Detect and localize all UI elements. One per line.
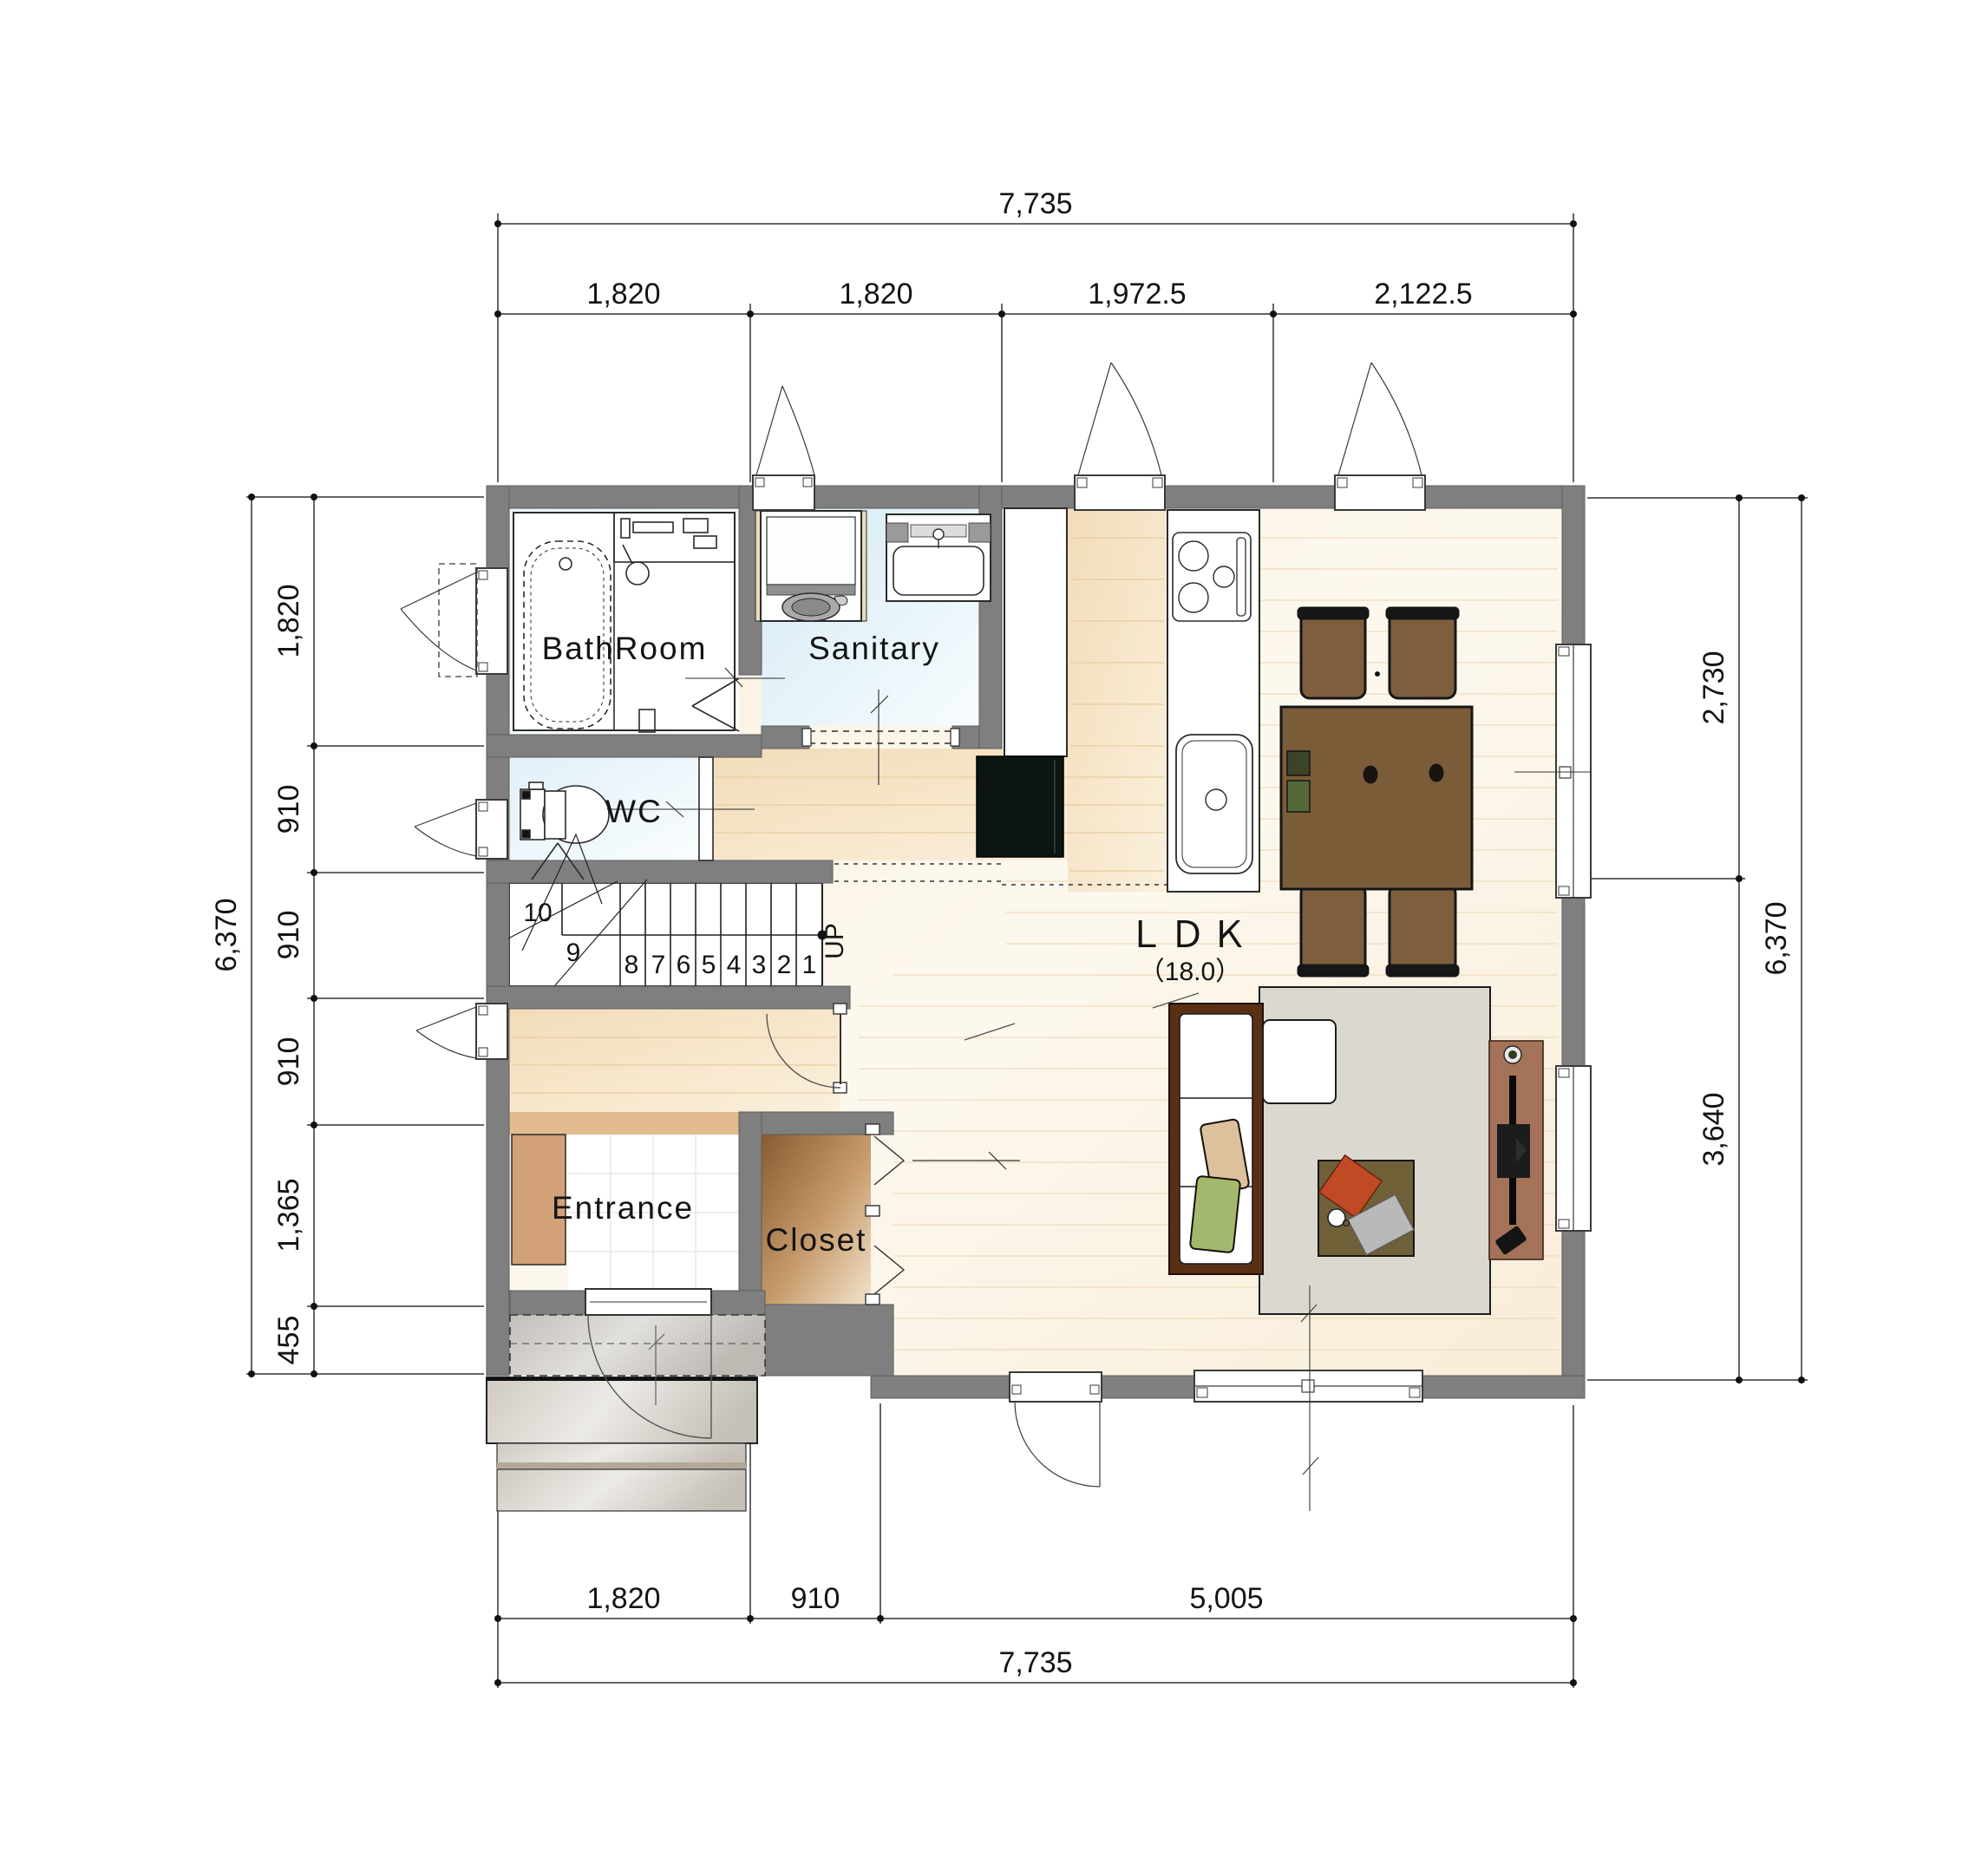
sofa-chaise [1263, 1020, 1336, 1103]
stair-7: 7 [651, 951, 666, 979]
table-plant-1 [1287, 751, 1310, 775]
wall-closet-south-block [762, 1305, 893, 1376]
dim-right-seg-1: 2,730 [1697, 651, 1730, 724]
window-north-3 [1335, 363, 1425, 510]
dim-left-seg-4: 910 [272, 1037, 305, 1087]
wall-stairs-south [487, 986, 850, 1009]
hallway-floor [509, 1009, 840, 1112]
cushion-green [1190, 1176, 1241, 1253]
table-item-2 [1429, 764, 1443, 782]
stair-10: 10 [523, 899, 552, 927]
dim-left-total: 6,370 [210, 898, 243, 971]
window-west-hall [416, 1004, 507, 1059]
stair-9: 9 [566, 939, 581, 967]
kitchen-aisle-floor [1068, 508, 1167, 892]
porch-slab [487, 1377, 757, 1443]
kitchen-tall-cabinet [1004, 508, 1067, 756]
wall-stairs-north [487, 860, 833, 883]
dim-right-seg-2: 3,640 [1697, 1092, 1730, 1166]
vanity-basin [893, 546, 984, 595]
window-north-1 [753, 386, 814, 510]
floor-plan-page: 7,735 1,820 1,820 1,972.5 2,122.5 6,370 … [0, 0, 1988, 1864]
label-entrance: Entrance [552, 1190, 694, 1226]
porch [487, 1315, 765, 1511]
wall-entrance-door-left [510, 1291, 585, 1315]
refrigerator [977, 756, 1063, 857]
dim-top-seg-3: 1,972.5 [1088, 278, 1186, 311]
label-sanitary: Sanitary [808, 631, 940, 666]
porch-step-2 [497, 1469, 746, 1511]
dim-left-seg-5: 1,365 [272, 1178, 305, 1252]
dim-bottom-seg-2: 910 [791, 1582, 840, 1615]
sink-drain [1206, 789, 1226, 810]
stair-3: 3 [752, 951, 767, 979]
label-bathroom: BathRoom [542, 631, 708, 666]
stair-5: 5 [702, 951, 716, 979]
tv-unit [1489, 1041, 1543, 1259]
dim-right-total: 6,370 [1760, 901, 1793, 975]
wall-entrance-door-right [711, 1291, 765, 1315]
stair-4: 4 [727, 951, 742, 979]
living-area [1169, 987, 1543, 1314]
dim-left-seg-3: 910 [272, 911, 305, 960]
window-north-2 [1075, 363, 1165, 510]
cooktop [1173, 533, 1251, 621]
stair-6: 6 [677, 951, 691, 979]
label-ldk: ＬＤＫ [1128, 914, 1252, 955]
dim-bottom-seg-1: 1,820 [586, 1582, 660, 1615]
label-closet: Closet [766, 1222, 867, 1258]
table-item-1 [1363, 766, 1377, 783]
dim-left-seg-2: 910 [272, 785, 305, 834]
window-west-wc [415, 800, 507, 859]
dim-bottom-total: 7,735 [998, 1646, 1072, 1679]
dim-left-seg-6: 455 [272, 1316, 305, 1365]
entrance-step-strip [509, 1112, 739, 1135]
dim-left-seg-1: 1,820 [272, 584, 305, 657]
stair-2: 2 [777, 951, 792, 979]
dim-top-seg-4: 2,122.5 [1374, 278, 1472, 311]
closet-floor [762, 1135, 871, 1305]
table-plant-2 [1287, 781, 1310, 812]
label-ldk-size: （18.0） [1139, 958, 1241, 986]
dim-top-seg-1: 1,820 [586, 278, 660, 311]
floor-plan-drawing: 7,735 1,820 1,820 1,972.5 2,122.5 6,370 … [0, 0, 1988, 1864]
label-wc: WC [605, 794, 663, 829]
bath-unit [513, 513, 735, 730]
stair-8: 8 [625, 951, 639, 979]
porch-recess [510, 1315, 765, 1376]
stair-up-label: UP [821, 923, 849, 959]
window-east-living [1556, 1066, 1591, 1231]
window-south-door [1010, 1372, 1102, 1487]
stair-1: 1 [802, 951, 817, 979]
wall-bath-south [487, 735, 762, 757]
dim-top-total: 7,735 [998, 187, 1072, 220]
coffee-table-group [1318, 1155, 1414, 1256]
wall-east [1562, 486, 1585, 1398]
window-west-bathroom [401, 564, 507, 677]
dim-bottom-seg-3: 5,005 [1189, 1582, 1263, 1615]
dim-top-seg-2: 1,820 [839, 278, 912, 311]
